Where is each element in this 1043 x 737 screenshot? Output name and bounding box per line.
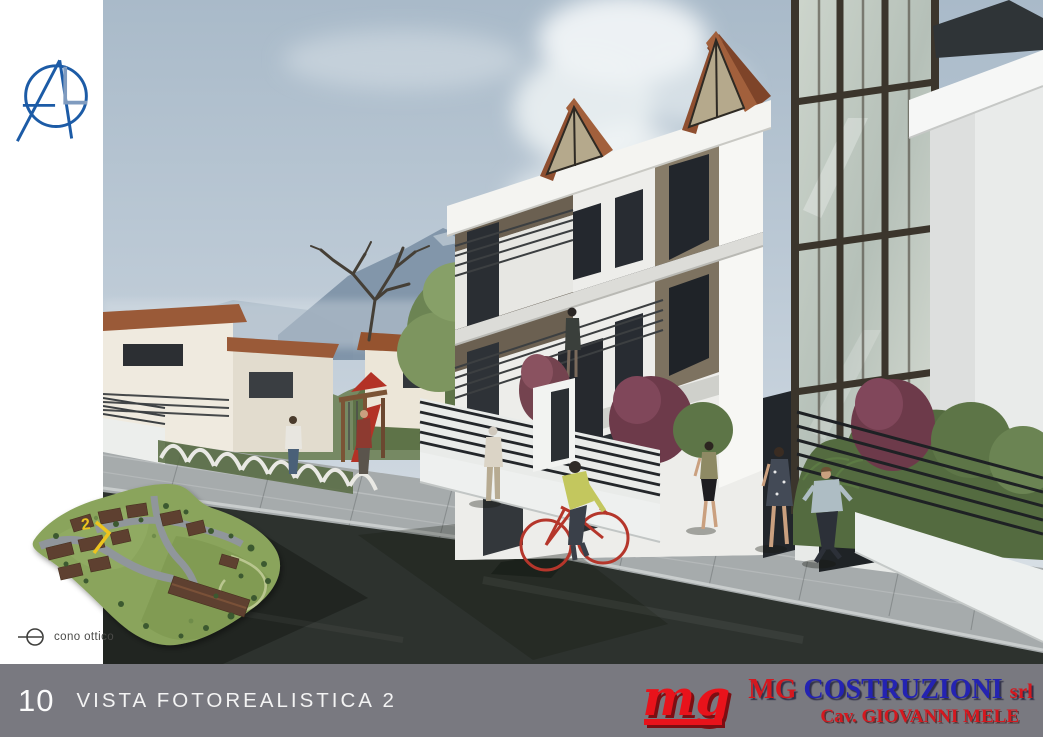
architect-logo: [10, 52, 102, 144]
view-cone-legend: cono ottico: [16, 624, 102, 650]
company-name-line: MG COSTRUZIONI srl: [748, 675, 1033, 706]
company-brand: mg MG COSTRUZIONI srl Cav. GIOVANNI MELE: [636, 675, 1043, 727]
company-name: COSTRUZIONI: [804, 674, 1003, 705]
mg-logo-underline: [644, 719, 722, 725]
company-suffix: srl: [1010, 679, 1033, 703]
title-bar: 10 VISTA FOTOREALISTICA 2 mg MG COSTRUZI…: [0, 664, 1043, 737]
mg-logo: mg: [636, 675, 740, 727]
company-prefix: MG: [748, 674, 796, 705]
view-cone-icon: [16, 626, 48, 648]
presentation-board: cono ottico: [0, 0, 1043, 737]
ground-floor-entry: [533, 378, 575, 472]
company-name-block: MG COSTRUZIONI srl Cav. GIOVANNI MELE: [748, 675, 1033, 727]
page-number: 10: [18, 683, 54, 719]
view-cone-label: cono ottico: [54, 631, 114, 643]
page-title: VISTA FOTOREALISTICA 2: [76, 689, 396, 713]
company-owner-line: Cav. GIOVANNI MELE: [820, 706, 1019, 727]
